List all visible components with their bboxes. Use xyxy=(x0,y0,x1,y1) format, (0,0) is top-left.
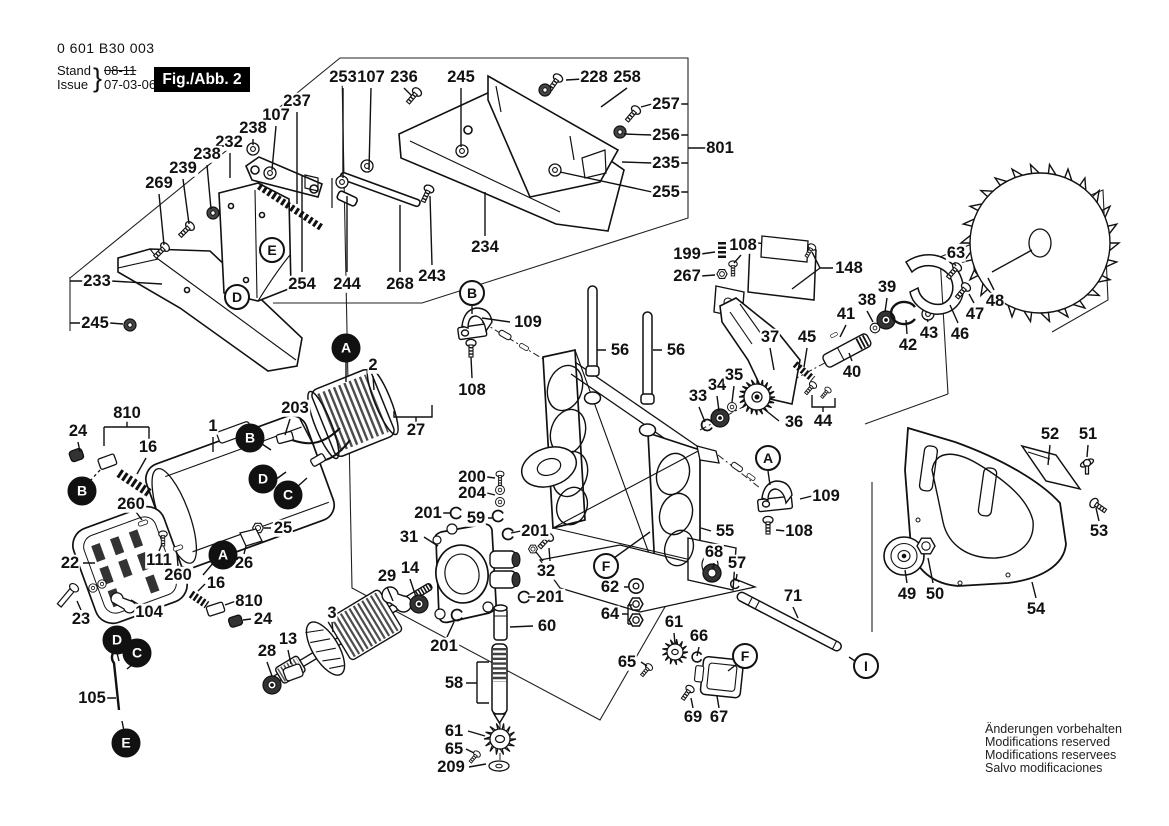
part-label-39: 39 xyxy=(877,279,897,296)
part-label-65: 65 xyxy=(617,654,637,671)
part-label-108: 108 xyxy=(457,382,487,399)
part-label-59: 59 xyxy=(466,510,486,527)
part-label-25: 25 xyxy=(273,520,293,537)
part-label-52: 52 xyxy=(1040,426,1060,443)
part-label-66: 66 xyxy=(689,628,709,645)
part-label-69: 69 xyxy=(683,709,703,726)
part-label-258: 258 xyxy=(612,69,642,86)
part-label-268: 268 xyxy=(385,276,415,293)
part-label-16: 16 xyxy=(206,575,226,592)
part-label-24: 24 xyxy=(68,423,88,440)
part-label-810: 810 xyxy=(112,405,142,422)
part-label-53: 53 xyxy=(1089,523,1109,540)
part-label-37: 37 xyxy=(760,329,780,346)
ref-marker-f: F xyxy=(732,643,758,669)
part-label-256: 256 xyxy=(651,127,681,144)
wire-marker-b: B xyxy=(68,477,97,506)
part-label-61: 61 xyxy=(444,723,464,740)
part-label-16: 16 xyxy=(138,439,158,456)
part-label-13: 13 xyxy=(278,631,298,648)
part-label-209: 209 xyxy=(436,759,466,776)
part-label-233: 233 xyxy=(82,273,112,290)
ref-marker-a: A xyxy=(755,445,781,471)
part-label-38: 38 xyxy=(857,292,877,309)
wire-marker-a: A xyxy=(209,541,238,570)
part-label-260: 260 xyxy=(116,496,146,513)
part-label-245: 245 xyxy=(446,69,476,86)
part-label-47: 47 xyxy=(965,306,985,323)
part-label-54: 54 xyxy=(1026,601,1046,618)
part-label-67: 67 xyxy=(709,709,729,726)
part-label-260: 260 xyxy=(163,567,193,584)
wire-marker-d: D xyxy=(249,465,278,494)
part-label-63: 63 xyxy=(946,245,966,262)
part-label-1: 1 xyxy=(207,418,218,435)
part-label-244: 244 xyxy=(332,276,362,293)
part-label-41: 41 xyxy=(836,306,856,323)
part-label-107: 107 xyxy=(356,69,386,86)
part-label-65: 65 xyxy=(444,741,464,758)
ref-marker-f: F xyxy=(593,553,619,579)
callout-layer: 2531072362452282582572562352558012371072… xyxy=(0,0,1169,826)
part-label-42: 42 xyxy=(898,337,918,354)
part-label-236: 236 xyxy=(389,69,419,86)
wire-marker-c: C xyxy=(274,481,303,510)
part-label-105: 105 xyxy=(77,690,107,707)
part-label-58: 58 xyxy=(444,675,464,692)
part-label-243: 243 xyxy=(417,268,447,285)
part-label-36: 36 xyxy=(784,414,804,431)
part-label-43: 43 xyxy=(919,325,939,342)
ref-marker-i: I xyxy=(853,653,879,679)
part-label-23: 23 xyxy=(71,611,91,628)
part-label-235: 235 xyxy=(651,155,681,172)
part-label-254: 254 xyxy=(287,276,317,293)
part-label-44: 44 xyxy=(813,413,833,430)
part-label-24: 24 xyxy=(253,611,273,628)
ref-marker-b: B xyxy=(459,280,485,306)
part-label-253: 253 xyxy=(328,69,358,86)
part-label-45: 45 xyxy=(797,329,817,346)
part-label-57: 57 xyxy=(727,555,747,572)
part-label-203: 203 xyxy=(280,400,310,417)
part-label-62: 62 xyxy=(600,579,620,596)
part-label-255: 255 xyxy=(651,184,681,201)
part-label-199: 199 xyxy=(672,246,702,263)
part-label-3: 3 xyxy=(326,605,337,622)
part-label-35: 35 xyxy=(724,367,744,384)
part-label-48: 48 xyxy=(985,293,1005,310)
exploded-parts-diagram-page: 0 601 B30 003 Stand Issue } 08-11 07-03-… xyxy=(0,0,1169,826)
part-label-201: 201 xyxy=(520,523,550,540)
part-label-60: 60 xyxy=(537,618,557,635)
part-label-28: 28 xyxy=(257,643,277,660)
part-label-46: 46 xyxy=(950,326,970,343)
part-label-29: 29 xyxy=(377,568,397,585)
part-label-257: 257 xyxy=(651,96,681,113)
part-label-32: 32 xyxy=(536,563,556,580)
wire-marker-c: C xyxy=(123,639,152,668)
wire-marker-a: A xyxy=(332,334,361,363)
part-label-2: 2 xyxy=(367,357,378,374)
part-label-228: 228 xyxy=(579,69,609,86)
part-label-50: 50 xyxy=(925,586,945,603)
wire-marker-e: E xyxy=(112,729,141,758)
part-label-33: 33 xyxy=(688,388,708,405)
part-label-201: 201 xyxy=(535,589,565,606)
part-label-56: 56 xyxy=(610,342,630,359)
part-label-31: 31 xyxy=(399,529,419,546)
part-label-204: 204 xyxy=(457,485,487,502)
part-label-267: 267 xyxy=(672,268,702,285)
ref-marker-d: D xyxy=(224,284,250,310)
part-label-201: 201 xyxy=(413,505,443,522)
part-label-68: 68 xyxy=(704,544,724,561)
part-label-49: 49 xyxy=(897,586,917,603)
part-label-801: 801 xyxy=(705,140,735,157)
part-label-109: 109 xyxy=(513,314,543,331)
part-label-810: 810 xyxy=(234,593,264,610)
part-label-234: 234 xyxy=(470,239,500,256)
part-label-22: 22 xyxy=(60,555,80,572)
part-label-14: 14 xyxy=(400,560,420,577)
wire-marker-b: B xyxy=(236,424,265,453)
part-label-27: 27 xyxy=(406,422,426,439)
part-label-56: 56 xyxy=(666,342,686,359)
part-label-108: 108 xyxy=(784,523,814,540)
part-label-55: 55 xyxy=(715,523,735,540)
ref-marker-e: E xyxy=(259,237,285,263)
part-label-109: 109 xyxy=(811,488,841,505)
part-label-40: 40 xyxy=(842,364,862,381)
part-label-51: 51 xyxy=(1078,426,1098,443)
part-label-269: 269 xyxy=(144,175,174,192)
part-label-104: 104 xyxy=(134,604,164,621)
part-label-61: 61 xyxy=(664,614,684,631)
part-label-64: 64 xyxy=(600,606,620,623)
part-label-245: 245 xyxy=(80,315,110,332)
part-label-71: 71 xyxy=(783,588,803,605)
part-label-148: 148 xyxy=(834,260,864,277)
part-label-201: 201 xyxy=(429,638,459,655)
part-label-108: 108 xyxy=(728,237,758,254)
